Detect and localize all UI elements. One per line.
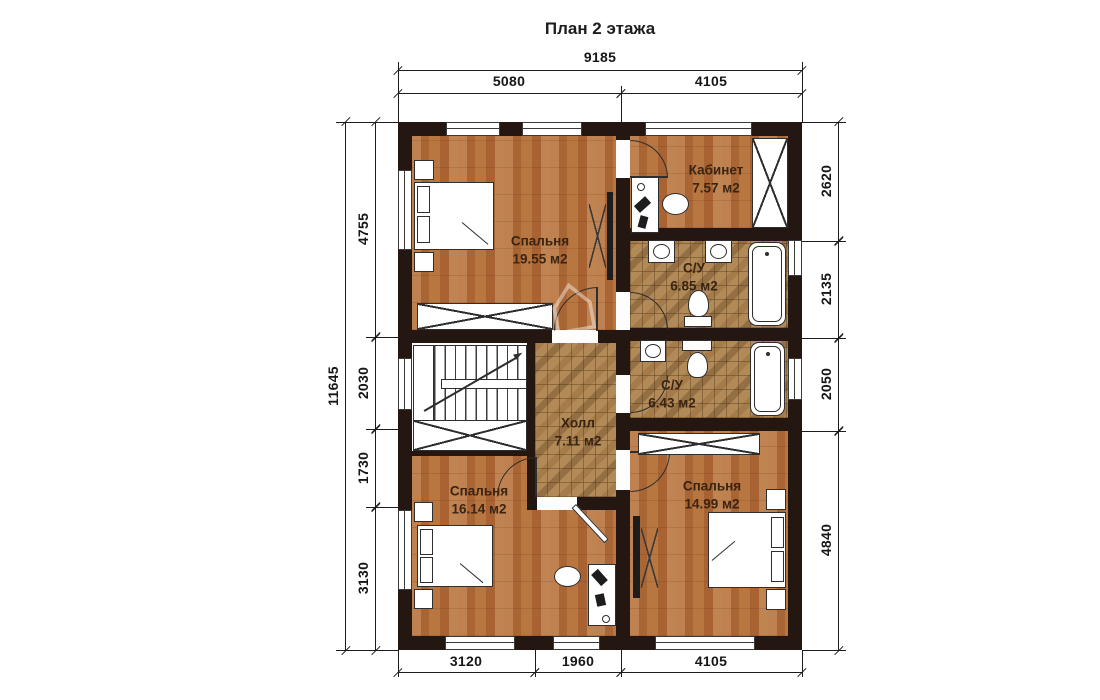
room-area: 16.14 м2 bbox=[450, 500, 508, 518]
door-opening-bath1 bbox=[616, 292, 630, 330]
room-name: Спальня bbox=[511, 232, 569, 250]
dim-line-left-seg1 bbox=[375, 122, 376, 337]
wall-bath2-bedroom-right bbox=[630, 418, 788, 431]
desk-lamp bbox=[602, 615, 610, 623]
pillow bbox=[420, 529, 433, 555]
tv-swivel-lines bbox=[641, 528, 658, 588]
dim-right-seg1: 2620 bbox=[818, 165, 834, 197]
dim-right-seg4: 4840 bbox=[818, 524, 834, 556]
dim-line-right-seg4 bbox=[838, 431, 839, 650]
stair-landing bbox=[413, 345, 435, 427]
door-opening-bath2 bbox=[616, 375, 630, 413]
dim-bottom-seg1: 3120 bbox=[450, 653, 482, 669]
dim-top-total: 9185 bbox=[584, 49, 616, 65]
dim-left-seg3: 1730 bbox=[355, 452, 371, 484]
dim-line-top-total bbox=[398, 70, 802, 71]
tv-bedroom-top bbox=[607, 192, 613, 280]
dim-line-left-seg4 bbox=[375, 507, 376, 650]
door-leaf-bedroom-left bbox=[535, 457, 537, 497]
window-bottom-2 bbox=[553, 636, 600, 650]
wardrobe-bedroom-top bbox=[417, 303, 553, 330]
room-label-bedroom-left: Спальня 16.14 м2 bbox=[450, 482, 508, 517]
dim-left-seg4: 3130 bbox=[355, 562, 371, 594]
window-top-2 bbox=[522, 122, 582, 136]
door-opening-bedroom-top bbox=[552, 330, 598, 343]
wardrobe-office bbox=[752, 138, 788, 228]
window-top-1 bbox=[446, 122, 500, 136]
pillow bbox=[417, 216, 430, 243]
wardrobe-under-stairs bbox=[413, 420, 527, 451]
room-label-bedroom-top: Спальня 19.55 м2 bbox=[511, 232, 569, 267]
extension-line bbox=[366, 337, 398, 338]
room-label-bedroom-right: Спальня 14.99 м2 bbox=[683, 477, 741, 512]
window-bottom-bedroom-right bbox=[655, 636, 755, 650]
window-top-office bbox=[645, 122, 752, 136]
desk-lamp bbox=[637, 183, 645, 191]
dim-line-bottom-seg2 bbox=[535, 672, 621, 673]
floor-plan-canvas: План 2 этажа bbox=[0, 0, 1100, 700]
door-opening-office bbox=[616, 140, 630, 178]
room-label-bathroom-1: С/У 6.85 м2 bbox=[670, 259, 718, 294]
room-label-bathroom-2: С/У 6.43 м2 bbox=[648, 376, 696, 411]
room-area: 6.43 м2 bbox=[648, 394, 696, 412]
toilet-tank bbox=[684, 316, 712, 327]
dim-bottom-seg3: 4105 bbox=[695, 653, 727, 669]
dim-line-right-seg3 bbox=[838, 338, 839, 431]
nightstand bbox=[766, 489, 786, 510]
window-left-stairwell bbox=[398, 358, 412, 410]
room-area: 14.99 м2 bbox=[683, 495, 741, 513]
dim-top-seg2: 4105 bbox=[695, 73, 727, 89]
dim-left-seg1: 4755 bbox=[355, 213, 371, 245]
pillow bbox=[771, 551, 784, 582]
extension-line bbox=[366, 429, 398, 430]
dim-line-left-seg2 bbox=[375, 337, 376, 429]
dim-top-seg1: 5080 bbox=[493, 73, 525, 89]
dim-line-right-seg1 bbox=[838, 122, 839, 241]
dim-line-right-seg2 bbox=[838, 241, 839, 338]
pillow bbox=[771, 517, 784, 548]
door-leaf-bedroom-top bbox=[596, 287, 598, 331]
dim-right-seg2: 2135 bbox=[818, 273, 834, 305]
dim-line-left-total bbox=[345, 122, 346, 650]
tv-bedroom-right bbox=[633, 516, 640, 598]
office-chair bbox=[662, 193, 689, 215]
room-name: Холл bbox=[555, 414, 602, 432]
dim-right-seg3: 2050 bbox=[818, 368, 834, 400]
dim-line-bottom-seg1 bbox=[398, 672, 535, 673]
room-area: 6.85 м2 bbox=[670, 277, 718, 295]
dim-bottom-seg2: 1960 bbox=[562, 653, 594, 669]
wall-stair-bedroom-left bbox=[412, 451, 527, 456]
room-area: 7.57 м2 bbox=[689, 179, 744, 197]
nightstand bbox=[414, 160, 434, 180]
extension-line bbox=[366, 507, 398, 508]
chair-bedroom-left bbox=[554, 566, 581, 587]
dim-left-seg2: 2030 bbox=[355, 367, 371, 399]
nightstand bbox=[414, 589, 433, 609]
toilet-tank bbox=[682, 340, 712, 351]
room-name: Кабинет bbox=[689, 161, 744, 179]
nightstand bbox=[414, 502, 433, 522]
room-name: Спальня bbox=[683, 477, 741, 495]
room-name: С/У bbox=[648, 376, 696, 394]
tv-swivel-lines bbox=[589, 204, 606, 268]
window-right-bath2 bbox=[788, 358, 802, 400]
bathtub-2 bbox=[750, 342, 785, 416]
room-area: 19.55 м2 bbox=[511, 250, 569, 268]
page-title: План 2 этажа bbox=[545, 19, 655, 39]
dim-line-top-seg2 bbox=[621, 93, 802, 94]
window-bottom-1 bbox=[445, 636, 515, 650]
dim-line-left-seg3 bbox=[375, 429, 376, 507]
room-label-hall: Холл 7.11 м2 bbox=[555, 414, 602, 449]
nightstand bbox=[766, 589, 786, 610]
window-left-bedroom-left bbox=[398, 510, 412, 590]
nightstand bbox=[414, 252, 434, 272]
sink bbox=[640, 340, 666, 362]
toilet-bowl bbox=[687, 352, 708, 378]
pillow bbox=[420, 557, 433, 583]
stair-rail bbox=[441, 379, 527, 389]
door-opening-bedroom-right bbox=[616, 450, 630, 490]
room-area: 7.11 м2 bbox=[555, 432, 602, 450]
dim-left-total: 11645 bbox=[325, 366, 341, 406]
bathtub-1 bbox=[748, 242, 786, 326]
room-name: С/У bbox=[670, 259, 718, 277]
pillow bbox=[417, 186, 430, 213]
window-left-bedroom-top bbox=[398, 170, 412, 250]
wardrobe-bedroom-right bbox=[638, 433, 760, 455]
dim-line-top-seg1 bbox=[398, 93, 621, 94]
room-name: Спальня bbox=[450, 482, 508, 500]
room-label-office: Кабинет 7.57 м2 bbox=[689, 161, 744, 196]
window-right-bath1 bbox=[788, 240, 802, 276]
dim-line-bottom-seg3 bbox=[621, 672, 802, 673]
